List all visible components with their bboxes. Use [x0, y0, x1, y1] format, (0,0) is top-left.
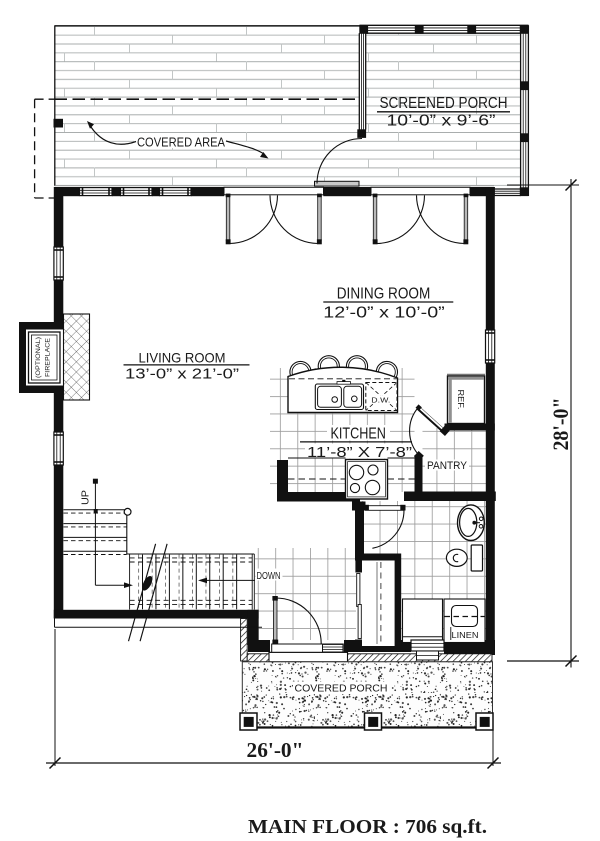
svg-text:13’-0” x 21’-0”: 13’-0” x 21’-0” [125, 367, 239, 383]
svg-text:FIREPLACE: FIREPLACE [45, 338, 52, 377]
svg-text:D.W.: D.W. [371, 396, 390, 405]
svg-text:26'-0": 26'-0" [247, 738, 304, 762]
svg-text:PANTRY: PANTRY [427, 460, 468, 472]
svg-text:COVERED AREA: COVERED AREA [137, 134, 225, 149]
svg-text:DINING ROOM: DINING ROOM [337, 286, 431, 303]
svg-text:SCREENED PORCH: SCREENED PORCH [380, 95, 508, 112]
svg-text:12’-0” x 10’-0”: 12’-0” x 10’-0” [323, 305, 445, 322]
svg-text:10’-0” x 9’-6”: 10’-0” x 9’-6” [387, 113, 496, 130]
svg-text:REF.: REF. [456, 390, 465, 410]
svg-text:LINEN: LINEN [452, 630, 479, 640]
svg-text:28'-0": 28'-0" [548, 398, 573, 451]
svg-text:DOWN: DOWN [257, 570, 281, 582]
svg-text:MAIN FLOOR : 706 sq.ft.: MAIN FLOOR : 706 sq.ft. [248, 816, 487, 838]
svg-text:UP: UP [80, 490, 92, 505]
svg-text:KITCHEN: KITCHEN [330, 425, 386, 442]
svg-text:COVERED PORCH: COVERED PORCH [295, 683, 388, 695]
svg-text:(OPTIONAL): (OPTIONAL) [35, 337, 42, 378]
svg-text:LIVING ROOM: LIVING ROOM [139, 350, 226, 365]
